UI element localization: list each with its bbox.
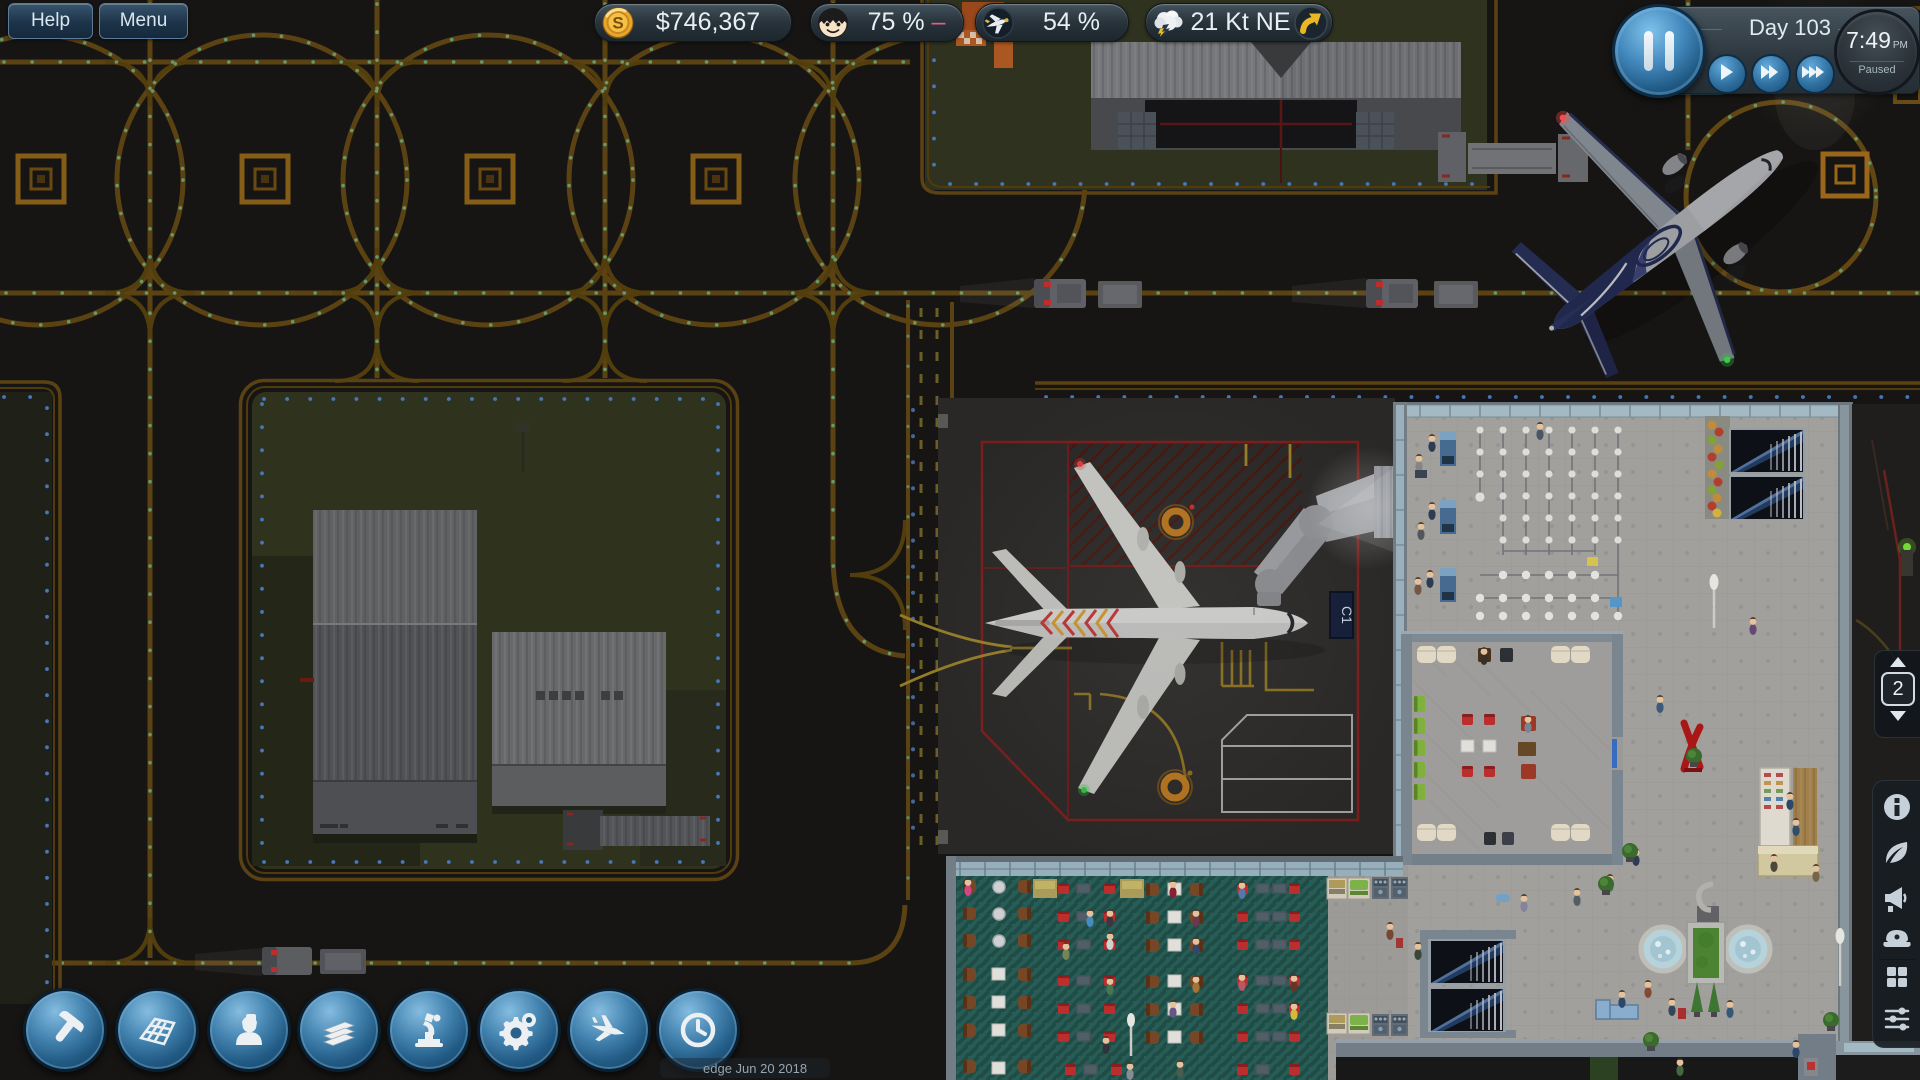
svg-text:S: S (612, 13, 623, 32)
